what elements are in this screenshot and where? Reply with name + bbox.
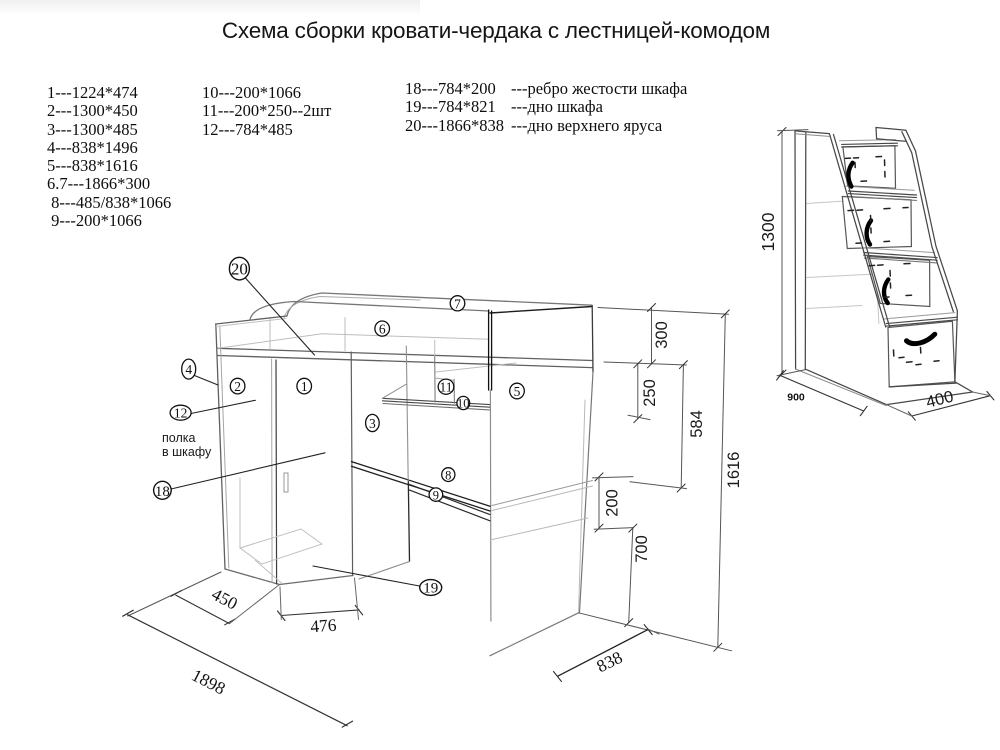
svg-text:300: 300 xyxy=(653,321,671,349)
svg-text:1898: 1898 xyxy=(189,665,229,699)
svg-text:6: 6 xyxy=(379,322,386,337)
svg-text:19: 19 xyxy=(423,581,438,597)
svg-text:5: 5 xyxy=(514,384,521,399)
svg-text:8: 8 xyxy=(445,468,451,482)
svg-text:11: 11 xyxy=(440,380,453,395)
svg-text:20: 20 xyxy=(231,260,248,279)
svg-text:7: 7 xyxy=(454,296,461,311)
svg-text:450: 450 xyxy=(209,584,242,614)
svg-text:838: 838 xyxy=(593,647,626,677)
svg-text:250: 250 xyxy=(641,379,659,407)
svg-text:12: 12 xyxy=(174,406,188,421)
svg-text:1300: 1300 xyxy=(758,212,778,251)
svg-text:584: 584 xyxy=(688,410,706,438)
svg-text:18: 18 xyxy=(155,484,170,500)
svg-text:3: 3 xyxy=(369,416,376,431)
svg-text:476: 476 xyxy=(310,615,338,637)
svg-text:400: 400 xyxy=(924,388,955,412)
svg-text:900: 900 xyxy=(787,392,805,404)
svg-text:9: 9 xyxy=(433,488,439,502)
svg-text:2: 2 xyxy=(234,379,241,394)
svg-text:10: 10 xyxy=(457,397,470,411)
svg-text:200: 200 xyxy=(604,489,622,517)
svg-text:1616: 1616 xyxy=(725,452,743,489)
svg-text:4: 4 xyxy=(185,362,192,377)
svg-text:700: 700 xyxy=(633,535,651,563)
svg-text:1: 1 xyxy=(301,379,308,394)
